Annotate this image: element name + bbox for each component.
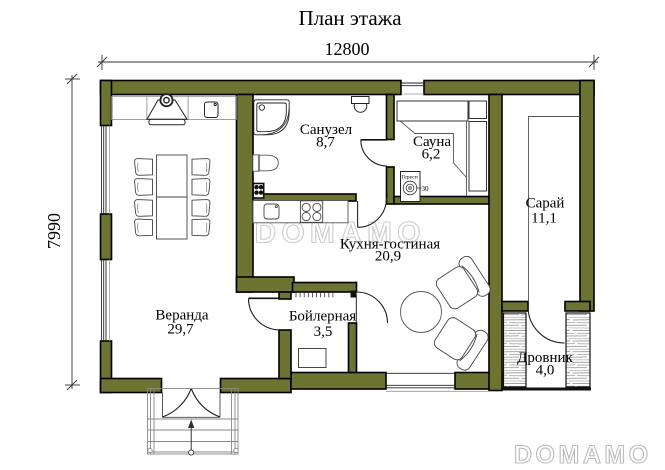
svg-text:4,0: 4,0 bbox=[536, 363, 555, 379]
svg-text:Сарай: Сарай bbox=[526, 196, 565, 212]
svg-text:6,2: 6,2 bbox=[422, 147, 441, 163]
svg-text:План этажа: План этажа bbox=[298, 6, 402, 30]
svg-text:3,5: 3,5 bbox=[314, 324, 333, 340]
svg-text:Гересп: Гересп bbox=[402, 175, 418, 181]
svg-text:11,1: 11,1 bbox=[531, 211, 557, 227]
svg-text:8,7: 8,7 bbox=[316, 135, 335, 151]
svg-text:30: 30 bbox=[422, 185, 430, 193]
svg-text:Бойлерная: Бойлерная bbox=[289, 309, 356, 325]
svg-text:20,9: 20,9 bbox=[375, 249, 401, 265]
svg-text:29,7: 29,7 bbox=[167, 322, 194, 338]
svg-text:7990: 7990 bbox=[44, 213, 64, 249]
svg-text:DOMAMO: DOMAMO bbox=[514, 441, 652, 469]
svg-text:12800: 12800 bbox=[325, 39, 370, 59]
